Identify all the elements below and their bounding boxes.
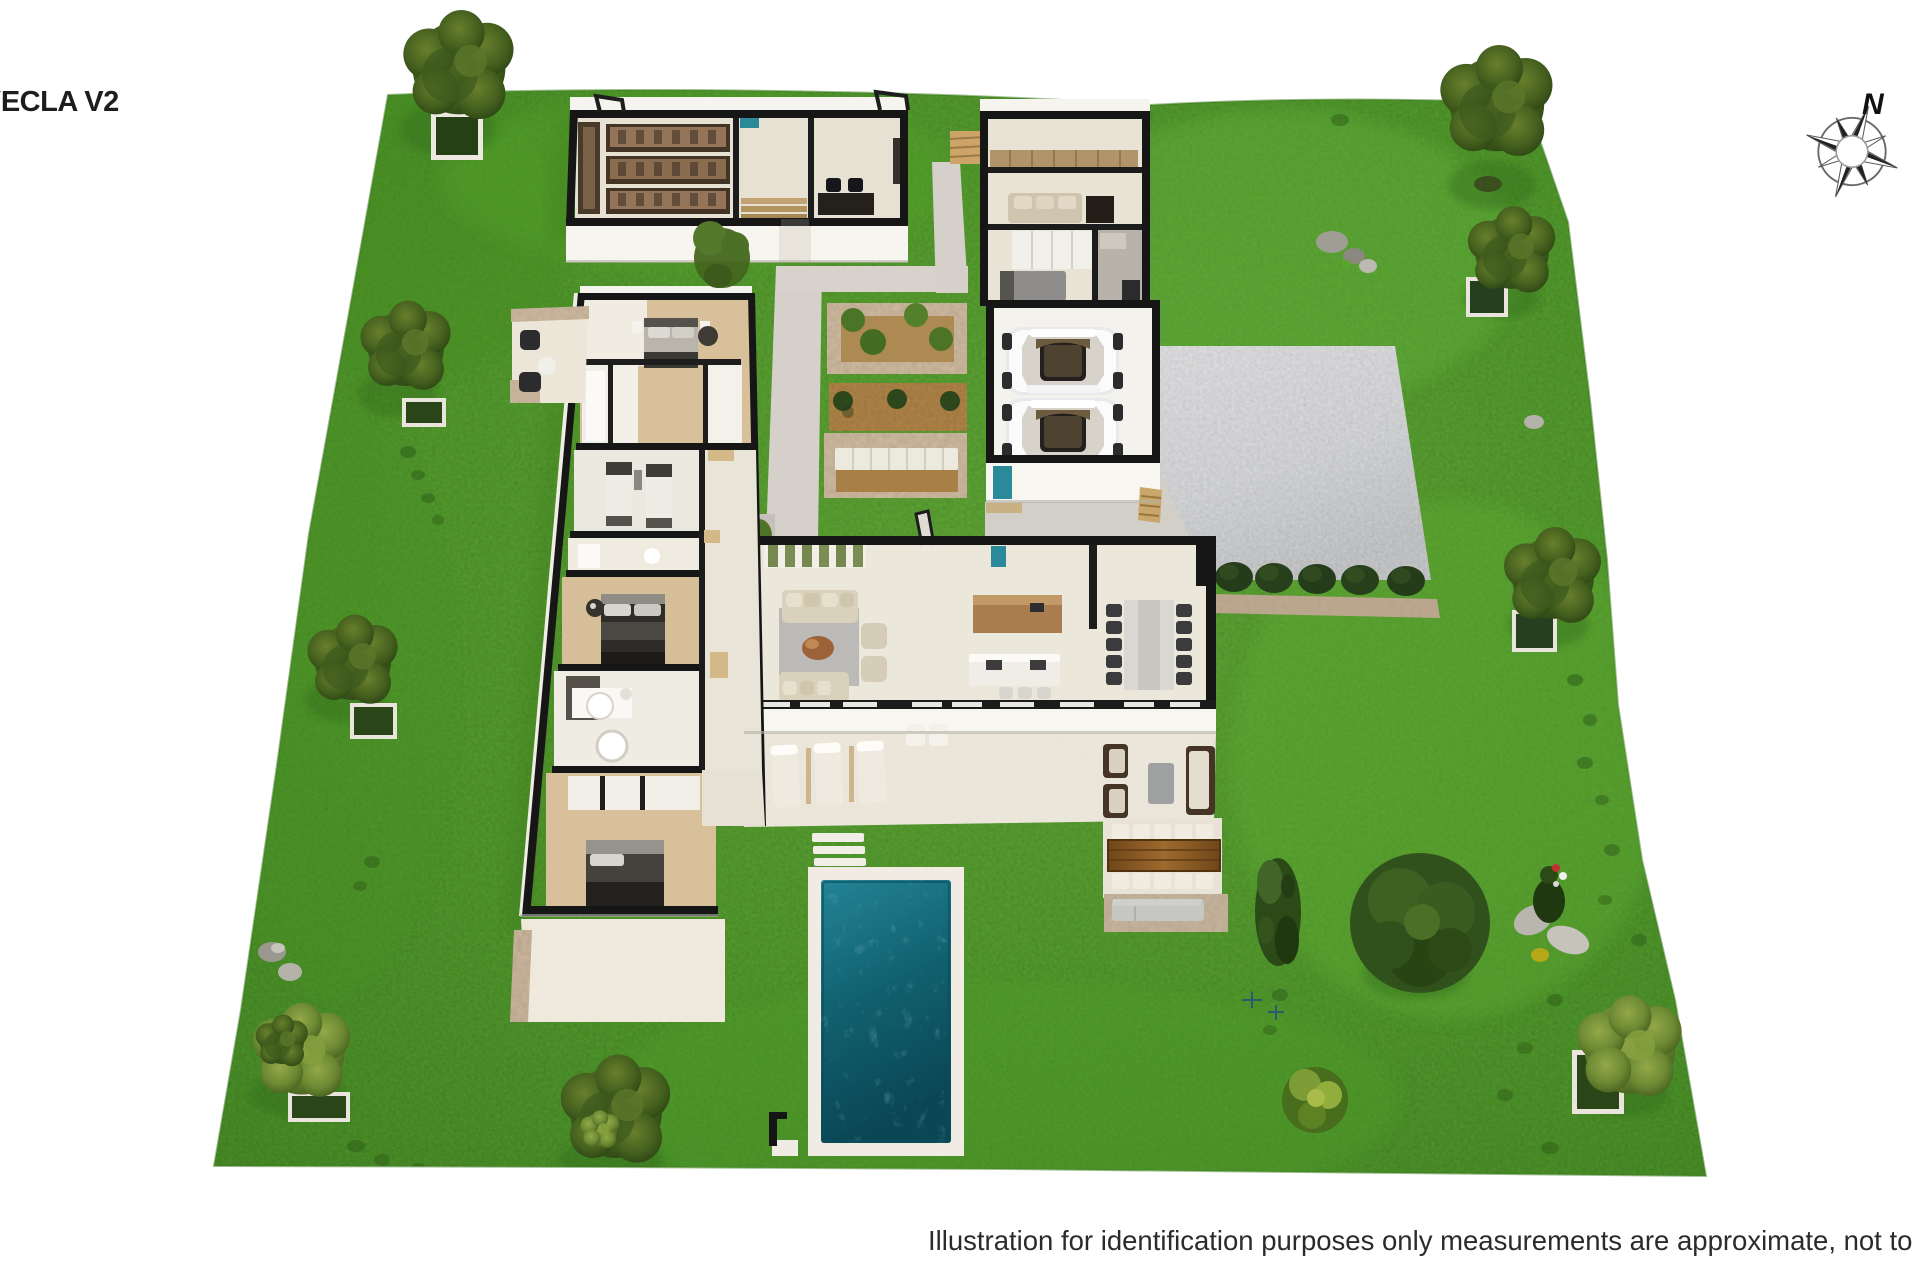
svg-text:YECLA V2: YECLA V2 bbox=[0, 86, 119, 118]
svg-text:Illustration for identificatio: Illustration for identification purposes… bbox=[928, 1225, 1920, 1256]
svg-text:N: N bbox=[1862, 88, 1885, 121]
